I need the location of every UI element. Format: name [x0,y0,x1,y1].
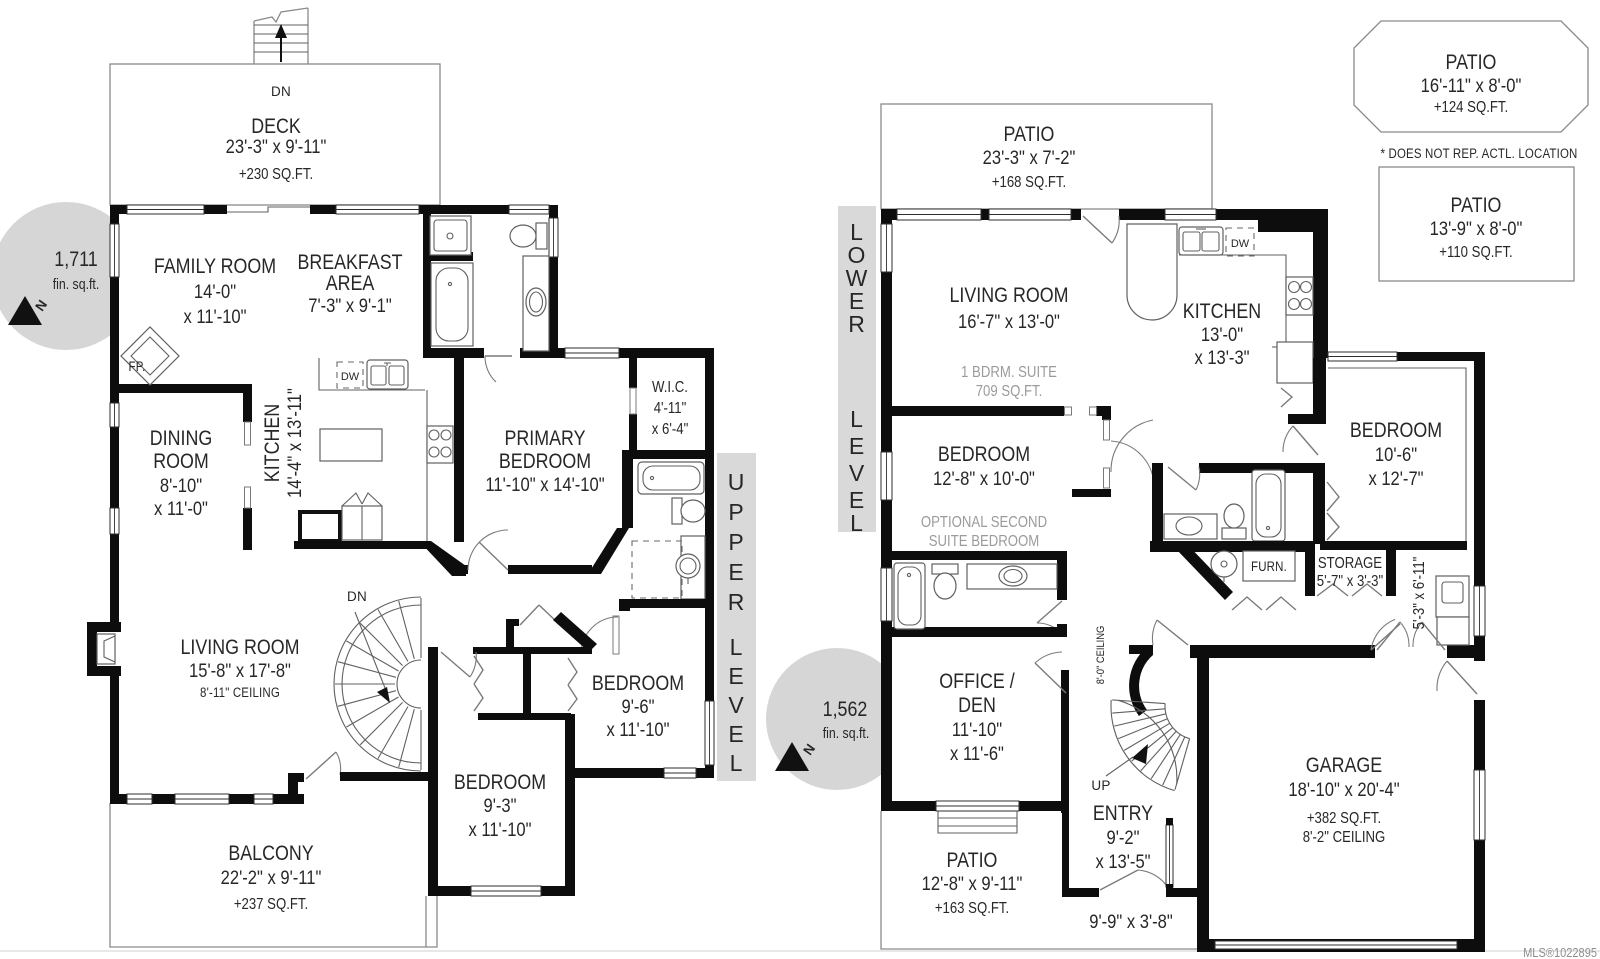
svg-text:P: P [728,499,744,525]
svg-text:5'-7" x 3'-3": 5'-7" x 3'-3" [1317,573,1383,590]
svg-text:OFFICE /: OFFICE / [939,670,1015,693]
svg-text:8'-10": 8'-10" [160,475,202,497]
svg-text:+168 SQ.FT.: +168 SQ.FT. [992,174,1066,191]
svg-text:ENTRY: ENTRY [1093,802,1153,825]
svg-text:9'-6": 9'-6" [622,696,655,718]
svg-text:9'-3": 9'-3" [484,795,517,817]
svg-text:+124 SQ.FT.: +124 SQ.FT. [1434,99,1508,116]
svg-text:E: E [849,433,865,459]
svg-text:1,711: 1,711 [54,248,97,271]
svg-text:PRIMARY: PRIMARY [505,427,586,450]
svg-text:9'-2": 9'-2" [1107,827,1140,849]
svg-text:DW: DW [1231,238,1250,250]
svg-text:709 SQ.FT.: 709 SQ.FT. [976,383,1043,400]
svg-text:8'-2" CEILING: 8'-2" CEILING [1303,829,1386,846]
svg-text:BALCONY: BALCONY [228,842,313,865]
svg-text:BEDROOM: BEDROOM [592,672,684,695]
svg-text:x 12'-7": x 12'-7" [1368,468,1423,490]
svg-text:PATIO: PATIO [1004,123,1055,146]
svg-text:OPTIONAL SECOND: OPTIONAL SECOND [921,514,1047,531]
svg-text:x 11'-10": x 11'-10" [468,819,531,841]
svg-text:+237 SQ.FT.: +237 SQ.FT. [234,896,308,913]
svg-text:E: E [728,663,744,689]
svg-text:GARAGE: GARAGE [1306,754,1382,777]
svg-text:BEDROOM: BEDROOM [454,771,546,794]
svg-text:x 11'-10": x 11'-10" [183,306,246,328]
svg-text:DN: DN [271,84,291,99]
svg-text:PATIO: PATIO [947,849,998,872]
svg-text:* DOES NOT REP. ACTL. LOCATION: * DOES NOT REP. ACTL. LOCATION [1381,146,1578,161]
svg-text:10'-6": 10'-6" [1375,444,1417,466]
svg-text:14'-0": 14'-0" [194,281,236,303]
svg-text:+382 SQ.FT.: +382 SQ.FT. [1307,810,1381,827]
svg-text:18'-10" x 20'-4": 18'-10" x 20'-4" [1288,779,1399,801]
svg-text:L: L [850,406,864,432]
svg-text:4'-11": 4'-11" [654,400,687,417]
svg-text:MLS®1022895: MLS®1022895 [1523,945,1597,959]
svg-text:11'-10" x 14'-10": 11'-10" x 14'-10" [485,474,604,496]
svg-text:fin. sq.ft.: fin. sq.ft. [53,277,100,293]
svg-text:KITCHEN: KITCHEN [1183,300,1261,323]
svg-text:E: E [728,559,744,585]
svg-text:x 6'-4": x 6'-4" [652,421,689,438]
svg-text:12'-8" x 9'-11": 12'-8" x 9'-11" [922,873,1023,895]
svg-text:fin. sq.ft.: fin. sq.ft. [823,726,870,742]
svg-text:DW: DW [341,371,360,383]
svg-text:x 11'-10": x 11'-10" [606,719,669,741]
svg-text:13'-0": 13'-0" [1201,324,1243,346]
svg-text:W.I.C.: W.I.C. [652,379,688,396]
svg-text:FP.: FP. [129,359,146,374]
svg-text:7'-3" x 9'-1": 7'-3" x 9'-1" [308,295,392,317]
svg-text:STORAGE: STORAGE [1318,555,1382,572]
svg-text:12'-8" x 10'-0": 12'-8" x 10'-0" [933,468,1035,490]
svg-text:9'-9" x 3'-8": 9'-9" x 3'-8" [1089,911,1173,933]
svg-text:x 13'-5": x 13'-5" [1095,851,1150,873]
svg-text:FURN.: FURN. [1251,559,1287,574]
svg-text:V: V [849,460,865,486]
svg-text:R: R [848,311,866,337]
svg-text:DECK: DECK [251,115,301,138]
svg-text:ROOM: ROOM [153,450,209,473]
svg-text:BEDROOM: BEDROOM [938,443,1030,466]
svg-text:23'-3" x 9'-11": 23'-3" x 9'-11" [226,136,327,158]
svg-text:BEDROOM: BEDROOM [1350,419,1442,442]
svg-text:KITCHEN: KITCHEN [261,404,284,482]
svg-text:SUITE BEDROOM: SUITE BEDROOM [929,533,1040,550]
svg-text:PATIO: PATIO [1451,194,1502,217]
svg-text:x 13'-3": x 13'-3" [1194,347,1249,369]
svg-text:+163 SQ.FT.: +163 SQ.FT. [935,900,1009,917]
svg-text:UP: UP [1091,778,1110,793]
svg-text:V: V [728,692,744,718]
svg-text:5'-3" x 6'-11": 5'-3" x 6'-11" [1411,557,1428,630]
svg-text:DINING: DINING [150,427,213,450]
svg-text:+230 SQ.FT.: +230 SQ.FT. [239,166,313,183]
svg-text:E: E [728,721,744,747]
svg-text:LIVING ROOM: LIVING ROOM [950,284,1069,307]
svg-text:U: U [728,469,746,495]
svg-text:BREAKFAST: BREAKFAST [297,251,402,274]
svg-text:x 11'-0": x 11'-0" [154,498,208,520]
svg-text:DEN: DEN [958,694,996,717]
svg-text:8'-11" CEILING: 8'-11" CEILING [200,685,280,700]
svg-text:AREA: AREA [326,272,375,295]
svg-text:P: P [728,529,744,555]
svg-text:8'-0" CEILING: 8'-0" CEILING [1095,626,1107,685]
svg-text:23'-3" x 7'-2": 23'-3" x 7'-2" [983,147,1076,169]
svg-text:FAMILY ROOM: FAMILY ROOM [154,255,276,278]
svg-text:BEDROOM: BEDROOM [499,450,591,473]
svg-text:1,562: 1,562 [823,698,868,721]
svg-text:15'-8" x 17'-8": 15'-8" x 17'-8" [189,660,291,682]
svg-text:11'-10": 11'-10" [952,719,1002,741]
svg-text:L: L [730,750,744,776]
svg-text:L: L [730,634,744,660]
svg-text:PATIO: PATIO [1446,51,1497,74]
svg-text:+110 SQ.FT.: +110 SQ.FT. [1439,244,1512,261]
svg-text:13'-9" x 8'-0": 13'-9" x 8'-0" [1430,218,1523,240]
svg-text:LIVING ROOM: LIVING ROOM [181,636,300,659]
svg-text:16'-11" x 8'-0": 16'-11" x 8'-0" [1421,75,1522,97]
svg-text:14'-4" x 13'-11": 14'-4" x 13'-11" [284,388,306,498]
svg-text:16'-7" x 13'-0": 16'-7" x 13'-0" [958,311,1060,333]
svg-text:DN: DN [347,589,367,604]
svg-text:R: R [728,589,746,615]
svg-text:L: L [850,510,864,536]
svg-text:1 BDRM. SUITE: 1 BDRM. SUITE [961,364,1057,381]
svg-text:22'-2" x 9'-11": 22'-2" x 9'-11" [221,867,322,889]
svg-text:x 11'-6": x 11'-6" [950,743,1004,765]
